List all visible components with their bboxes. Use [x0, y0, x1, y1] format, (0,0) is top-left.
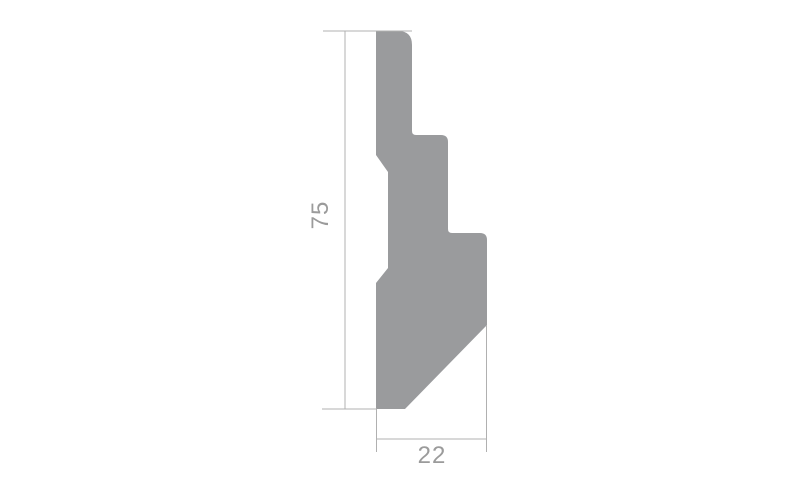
height-dimension-label: 75: [309, 201, 333, 230]
width-dimension-label: 22: [418, 444, 447, 468]
profile-shape: [376, 31, 487, 409]
technical-drawing-canvas: 75 22: [0, 0, 800, 500]
profile-drawing-svg: [0, 0, 800, 500]
